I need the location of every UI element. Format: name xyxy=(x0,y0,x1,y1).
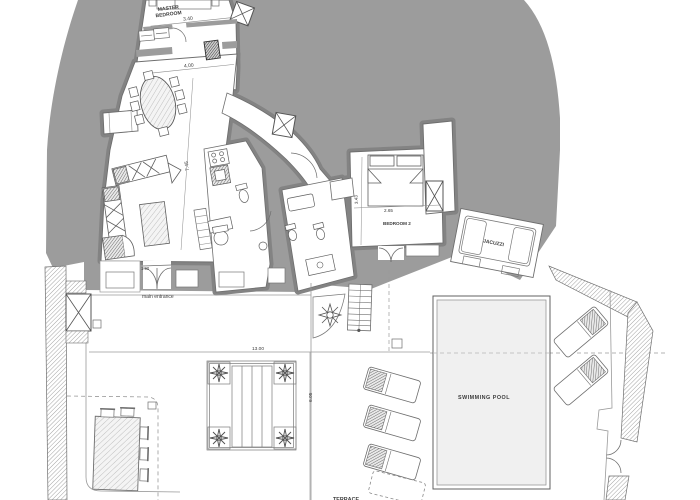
svg-text:3.40: 3.40 xyxy=(183,16,194,23)
svg-text:4.00: 4.00 xyxy=(184,63,195,70)
svg-text:2.65: 2.65 xyxy=(384,208,393,213)
svg-text:6.05: 6.05 xyxy=(308,392,314,402)
svg-text:SWIMMING POOL: SWIMMING POOL xyxy=(458,395,510,401)
svg-text:BEDROOM 2: BEDROOM 2 xyxy=(383,221,411,226)
svg-text:main entrance: main entrance xyxy=(142,294,174,300)
svg-text:3.43: 3.43 xyxy=(354,195,359,205)
svg-text:13.00: 13.00 xyxy=(252,346,264,352)
svg-text:1.90: 1.90 xyxy=(141,266,150,271)
